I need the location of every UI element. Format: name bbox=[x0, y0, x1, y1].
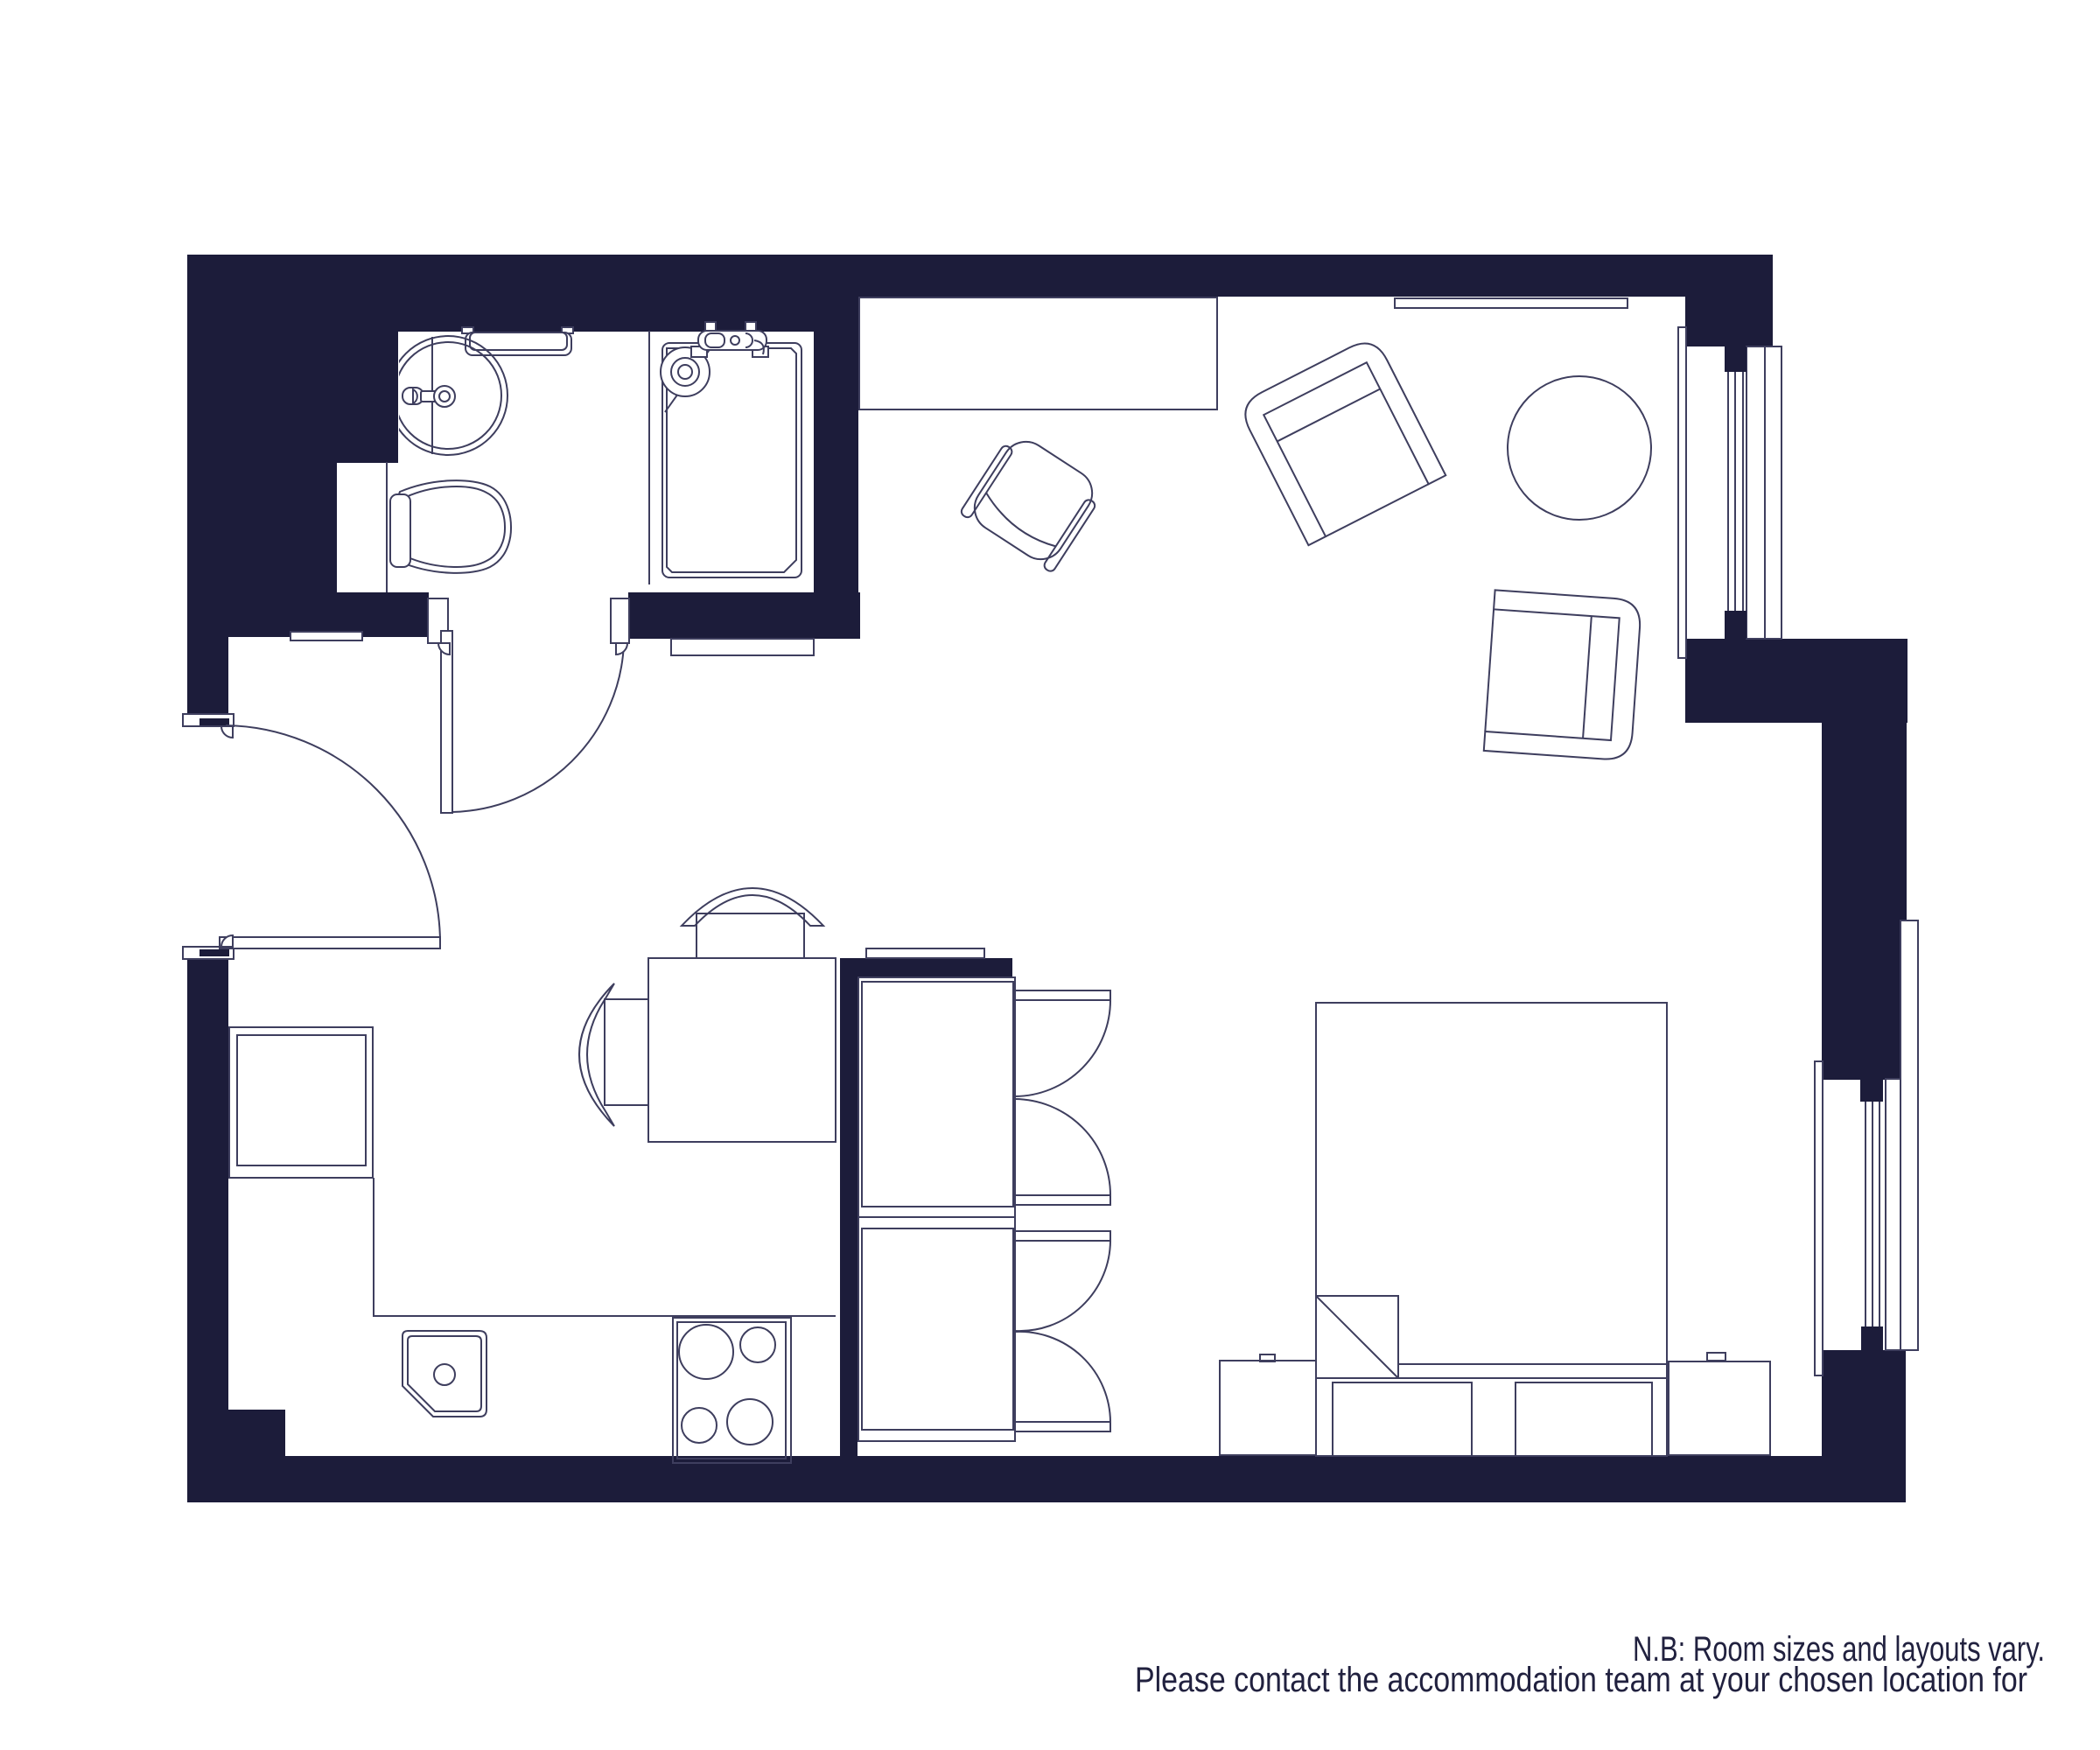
svg-text:Please contact the accommodati: Please contact the accommodation team at… bbox=[1135, 1661, 2027, 1699]
